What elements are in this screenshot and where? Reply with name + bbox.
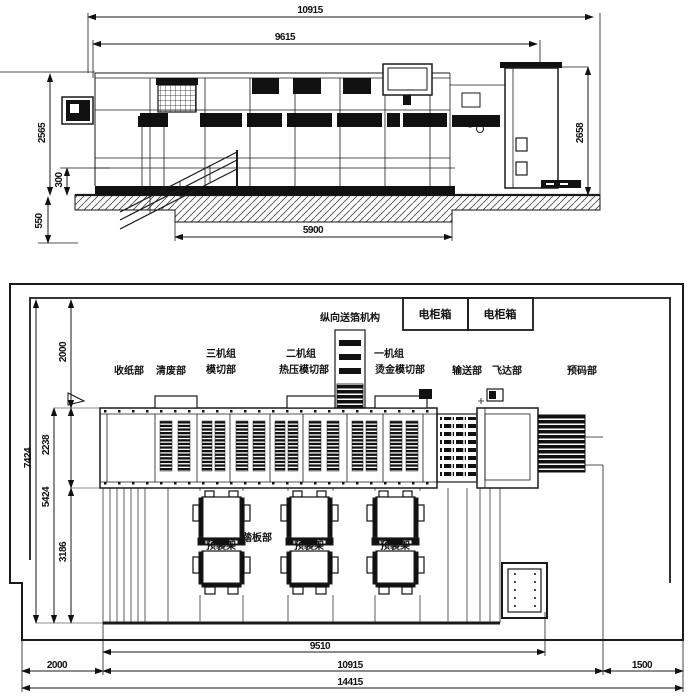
- label-unit3-line2: 模切部: [206, 363, 236, 376]
- delivery-stacker: [158, 85, 196, 112]
- label-unit2-line2: 热压模切部: [279, 363, 329, 376]
- machine-left-flag: [68, 393, 84, 405]
- feeder-section: [477, 389, 603, 488]
- control-monitor: [383, 64, 432, 105]
- dim-width-7424: 7424: [23, 447, 34, 468]
- label-unit2-line1: 二机组: [286, 347, 316, 360]
- dim-machine-width: 2238: [41, 434, 52, 455]
- label-rack-3: 预装架: [380, 539, 410, 552]
- side-conveyor: [138, 116, 168, 193]
- operator-panel: [62, 97, 93, 124]
- label-feeder: 飞达部: [492, 364, 522, 377]
- plan-machine-body: [68, 389, 437, 488]
- label-conveyor: 输送部: [452, 364, 482, 377]
- dim-right-height: 2658: [575, 122, 586, 143]
- sheet-pile: [538, 415, 585, 472]
- dim-body-length: 9615: [275, 32, 296, 43]
- dim-left-height: 2565: [37, 122, 48, 143]
- dim-total-length: 14415: [337, 677, 363, 688]
- engineering-drawing: 10915 9615 2565 300 550 2658 5900: [0, 0, 695, 697]
- label-cabinet-2: 电柜箱: [484, 307, 517, 321]
- drawing-page: 10915 9615 2565 300 550 2658 5900: [0, 0, 695, 697]
- dim-machine-length: 9510: [310, 641, 331, 652]
- dim-left-clearance: 2000: [47, 660, 68, 671]
- label-cabinet-1: 电柜箱: [419, 307, 452, 321]
- label-rack-2: 预装架: [294, 539, 324, 552]
- foundation-hatch: [75, 195, 600, 222]
- dim-foundation-depth: 550: [34, 212, 45, 228]
- dim-base-height: 300: [54, 171, 65, 187]
- label-foil-feed: 纵向送箔机构: [320, 311, 380, 324]
- conveyor-section: [437, 414, 477, 482]
- dim-right-clearance: 1500: [632, 660, 653, 671]
- label-unit1-line2: 烫金模切部: [375, 363, 425, 376]
- label-stripping: 清废部: [156, 364, 186, 377]
- label-delivery: 收纸部: [114, 364, 144, 377]
- plan-view: 2000 2238 7424 5424 3186 9510 2000 10915…: [10, 284, 683, 692]
- dim-overall-length: 10915: [297, 5, 323, 16]
- dim-length-10915: 10915: [337, 660, 363, 671]
- top-protrusion-boxes: [155, 389, 432, 408]
- pallet-station: [502, 563, 547, 618]
- side-elevation-view: 10915 9615 2565 300 550 2658 5900: [0, 5, 600, 243]
- dim-front-clearance: 3186: [58, 541, 69, 562]
- label-unit1-line1: 一机组: [374, 347, 404, 360]
- label-rack-1: 预装架: [206, 539, 236, 552]
- dim-pit-span: 5900: [303, 225, 324, 236]
- dim-rear-clearance: 2000: [58, 341, 69, 362]
- feeder-cabinet-elevation: [500, 62, 581, 188]
- foil-feed-mechanism: [335, 330, 365, 408]
- elevation-right-section: [450, 85, 505, 133]
- label-unit3-line1: 三机组: [206, 347, 236, 360]
- label-pedal: 踏板部: [242, 531, 272, 544]
- dim-width-5424: 5424: [41, 486, 52, 507]
- label-prestack: 预码部: [567, 364, 597, 377]
- die-cutting-modules: [160, 421, 418, 471]
